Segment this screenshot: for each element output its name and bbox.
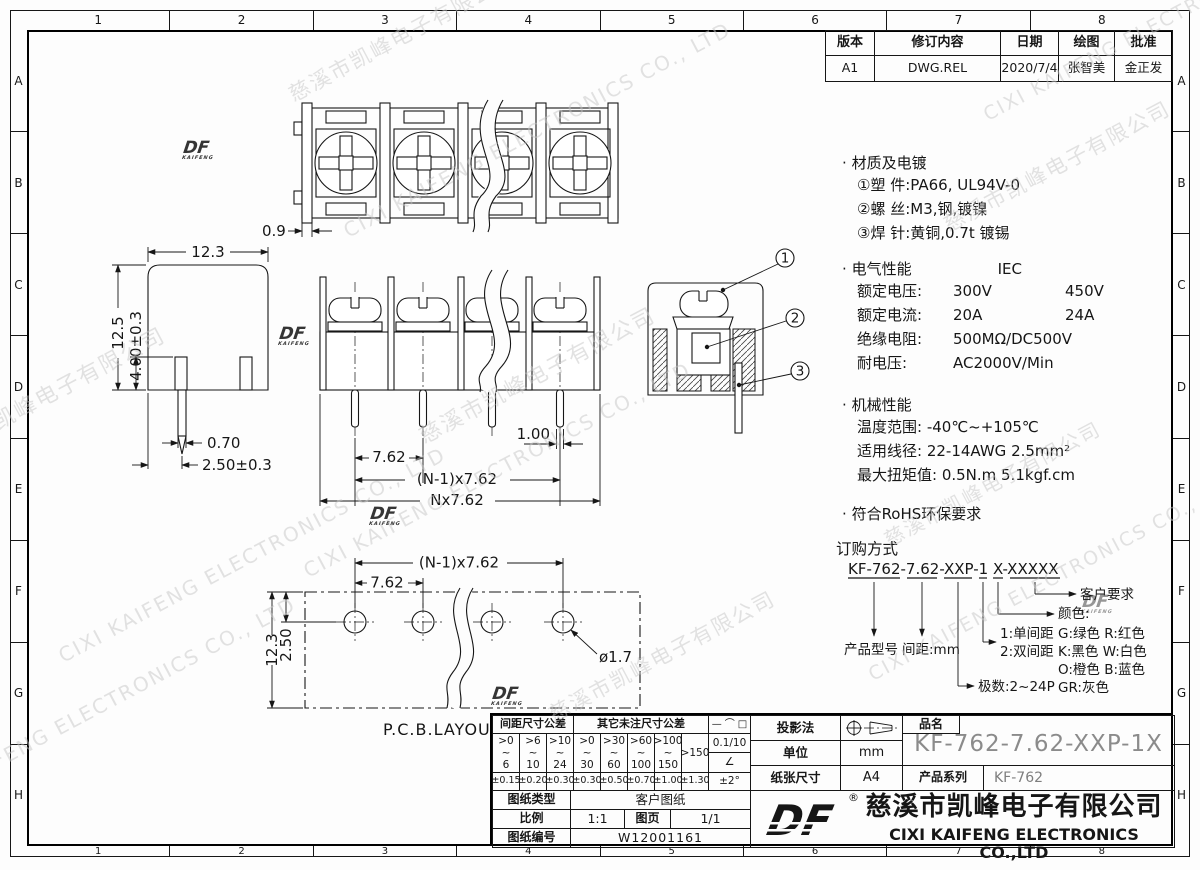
spec-label: 额定电压: (857, 279, 953, 303)
side-view-drawing: 12.3 12.5 4.00±0.3 0.70 2.50±0.3 (88, 238, 298, 478)
kaifeng-stamp-logo: DFKAIFENG (491, 688, 525, 706)
scale-value: 1:1 (570, 809, 625, 829)
hatched-wall (653, 329, 667, 391)
grid-row-label: E (10, 439, 27, 541)
dimension-pin-offset-2.50: 2.50±0.3 (132, 393, 272, 474)
geometry-symbols: —⌒□ (708, 715, 751, 734)
dim-text: Nx7.62 (430, 491, 484, 509)
engineering-drawing-sheet: { "sheet": { "grid_cols": ["1","2","3","… (0, 0, 1200, 870)
revision-draftsman: 张智美 (1058, 55, 1115, 82)
revision-header-version: 版本 (825, 30, 875, 56)
tolerance-range: >0 ~ 30 (573, 733, 601, 773)
part-name-value: KF-762-7.62-XXP-1X (914, 731, 1163, 757)
section-view-drawing: 1 2 3 (633, 243, 813, 448)
company-name-en: CIXI KAIFENG ELECTRONICS CO.,LTD (855, 826, 1173, 863)
straightness-icon: — (712, 719, 722, 731)
company-cell: DF ® 慈溪市凯峰电子有限公司 CIXI KAIFENG ELECTRONIC… (750, 790, 1175, 848)
range-text: >10 ~ 24 (549, 735, 571, 771)
side-view-body (148, 265, 268, 454)
kaifeng-stamp-logo: DFKAIFENG (1081, 596, 1115, 614)
angle-tolerance: ±2° (708, 772, 751, 791)
doc-number-label: 图纸编号 (492, 828, 571, 848)
dim-text: 4.00±0.3 (127, 311, 145, 381)
company-logo-icon: DF (759, 798, 847, 842)
balloon-callout-1: 1 (721, 249, 794, 292)
dimension-pin-1.00: 1.00 (517, 425, 583, 449)
mechanical-title: 机械性能 (852, 396, 912, 414)
series-value: KF-762 (983, 765, 1175, 791)
dim-text: 2.50 (277, 628, 295, 661)
balloon-number: 1 (781, 251, 790, 267)
range-text: >6 ~ 10 (525, 735, 540, 771)
revision-table: 版本 修订内容 日期 绘图 批准 A1 DWG.REL 2020/7/4 张智美… (825, 30, 1173, 82)
mechanical-item: 适用线径: 22-14AWG 2.5mm² (857, 439, 1187, 463)
dim-text: ø1.7 (599, 648, 632, 666)
grid-row-label: B (10, 132, 27, 234)
page-label: 图页 (624, 809, 671, 829)
dim-text: 1.00 (517, 425, 550, 443)
part-name-cell: 品名 KF-762-7.62-XXP-1X (902, 715, 1175, 766)
bullet: · (842, 154, 847, 172)
revision-header-approve: 批准 (1114, 30, 1173, 56)
grid-col-label: 1 (27, 10, 170, 30)
grid-col-label: 2 (170, 846, 313, 857)
unit-value: mm (840, 740, 903, 766)
material-notes: · 材质及电镀 ①塑 件:PA66, UL94V-0 ②螺 丝:M3,钢,镀镍 … (842, 152, 1187, 245)
rohs-text: 符合RoHS环保要求 (852, 505, 982, 523)
material-item: ②螺 丝:M3,钢,镀镍 (857, 197, 1187, 221)
dimension-pcb-pitch: 7.62 (355, 574, 423, 609)
spec-label: 额定电流: (857, 303, 953, 327)
page-value: 1/1 (670, 809, 751, 829)
grid-col-label: 8 (1031, 10, 1173, 30)
grid-col-label: 4 (457, 10, 600, 30)
tolerance-range: >30 ~ 60 (600, 733, 628, 773)
dim-text: 12.5 (109, 316, 127, 349)
pcb-layout-drawing: (N-1)x7.62 7.62 12.3 2.50 ø1.7 (255, 550, 685, 722)
arc-icon: ⌒ (725, 719, 735, 731)
dim-text: 7.62 (370, 574, 403, 592)
dim-text: (N-1)x7.62 (419, 554, 499, 572)
electrical-standard: IEC (998, 260, 1022, 278)
ordering-code: KF-762-7.62-XXP-1 X-XXXXX (848, 560, 1059, 578)
spec-label: 耐电压: (857, 351, 953, 375)
revision-header-date: 日期 (1000, 30, 1059, 56)
other-tolerance-header: 其它未注尺寸公差 (573, 715, 709, 734)
rohs-line: · 符合RoHS环保要求 (842, 503, 1187, 524)
grid-band-left: A B C D E F G H (10, 30, 27, 846)
front-view-body (320, 277, 600, 436)
ordering-title: 订购方式 (836, 540, 898, 558)
first-angle-projection-icon (840, 715, 903, 741)
bullet: · (842, 260, 847, 278)
ordering-spacing-1: 1:单间距 (1000, 626, 1054, 642)
ordering-poles: 极数:2~24P (978, 679, 1055, 695)
spec-value: 300V (953, 279, 1065, 303)
tolerance-value: ±1.00 (654, 772, 682, 791)
spec-value: 20A (953, 303, 1065, 327)
electrical-notes: · 电气性能IEC 额定电压:300V450V 额定电流:20A24A 绝缘电阻… (842, 258, 1187, 375)
range-text: >60 ~ 100 (630, 735, 652, 771)
ordering-spacing-2: 2:双间距 (1000, 644, 1054, 660)
ordering-pitch: 间距:mm (902, 642, 960, 658)
tolerance-range: >6 ~ 10 (519, 733, 547, 773)
paper-size-value: A4 (840, 765, 903, 791)
tolerance-value: ±0.30 (546, 772, 574, 791)
dim-text: (N-1)x7.62 (417, 470, 497, 488)
revision-date: 2020/7/4 (1000, 55, 1059, 82)
range-text: >0 ~ 30 (579, 735, 594, 771)
electrical-row: 额定电流:20A24A (857, 303, 1187, 327)
electrical-title-line: · 电气性能IEC (842, 258, 1187, 279)
material-title-line: · 材质及电镀 (842, 152, 1187, 173)
mounting-hole (404, 603, 442, 641)
grid-row-label: H (10, 745, 27, 846)
tolerance-value: ±0.50 (600, 772, 628, 791)
grid-col-label: 5 (601, 10, 744, 30)
tolerance-value: ±1.30 (681, 772, 709, 791)
range-text: >30 ~ 60 (603, 735, 625, 771)
tolerance-range: >60 ~ 100 (627, 733, 655, 773)
mechanical-item: 最大扭矩值: 0.5N.m 5.1kgf.cm (857, 463, 1187, 487)
angle-icon: ∠ (708, 752, 751, 773)
section-body (648, 283, 763, 433)
pcb-layout-label: P.C.B.LAYOUT (383, 720, 502, 739)
solder-pin (735, 363, 742, 433)
ordering-color-row: K:黑色 W:白色 (1058, 643, 1147, 660)
spec-value: 24A (1065, 306, 1094, 324)
grid-col-label: 3 (314, 10, 457, 30)
spec-label: 绝缘电阻: (857, 327, 953, 351)
tolerance-value: ±0.20 (519, 772, 547, 791)
dim-text: 7.62 (372, 448, 405, 466)
mechanical-title-line: · 机械性能 (842, 394, 1187, 415)
doc-type-value: 客户图纸 (570, 790, 751, 810)
grid-col-label: 2 (170, 10, 313, 30)
terminal-cell (549, 111, 611, 215)
electrical-title: 电气性能 (852, 260, 912, 278)
dimension-pin-width-0.70: 0.70 (162, 434, 240, 452)
material-item: ①塑 件:PA66, UL94V-0 (857, 173, 1187, 197)
range-text: >100 ~ 150 (654, 735, 683, 771)
electrical-row: 额定电压:300V450V (857, 279, 1187, 303)
doc-type-label: 图纸类型 (492, 790, 571, 810)
kaifeng-stamp-logo: DFKAIFENG (278, 328, 312, 346)
bullet: · (842, 505, 847, 523)
top-view-drawing: 0.9 (262, 96, 624, 240)
terminal-cell (393, 111, 455, 215)
revision-header-content: 修订内容 (874, 30, 1001, 56)
dimension-hole-dia: ø1.7 (571, 630, 632, 666)
title-block: 间距尺寸公差 其它未注尺寸公差 >0 ~ 6 >6 ~ 10 >10 ~ 24 … (490, 713, 1173, 846)
dimension-pcb-offset: 2.50 (277, 592, 336, 662)
tolerance-range: >10 ~ 24 (546, 733, 574, 773)
kaifeng-stamp-logo: DFKAIFENG (182, 142, 216, 160)
spec-value: 500MΩ/DC500V (953, 330, 1072, 348)
part-name-label: 品名 (902, 715, 960, 734)
company-name-cn: 慈溪市凯峰电子有限公司 (855, 793, 1173, 823)
revision-header-draw: 绘图 (1058, 30, 1115, 56)
ordering-color-row: G:绿色 R:红色 (1058, 625, 1145, 642)
mechanical-item: 温度范围: -40℃~+105℃ (857, 415, 1187, 439)
logo-text: DF (763, 797, 837, 845)
electrical-row: 耐电压:AC2000V/Min (857, 351, 1187, 375)
dimension-pitch-7.62: 7.62 (355, 438, 423, 506)
doc-number-value: W12001161 (570, 828, 751, 848)
ordering-diagram: 订购方式 KF-762-7.62-XXP-1 X-XXXXX 产品型号 间距:m… (830, 538, 1188, 718)
electrical-row: 绝缘电阻:500MΩ/DC500V (857, 327, 1187, 351)
ordering-product-model: 产品型号 (844, 642, 898, 658)
grid-row-label: A (10, 30, 27, 132)
dim-text: 0.70 (207, 434, 240, 452)
dimension-width-12.3: 12.3 (148, 243, 268, 262)
mechanical-notes: · 机械性能 温度范围: -40℃~+105℃ 适用线径: 22-14AWG 2… (842, 394, 1187, 487)
scale-label: 比例 (492, 809, 571, 829)
hatched-base (677, 375, 701, 391)
hatched-base (711, 375, 730, 391)
tolerance-range: >100 ~ 150 (654, 733, 682, 773)
terminal-cell (315, 111, 377, 215)
paper-size-label: 纸张尺寸 (750, 765, 841, 791)
series-label: 产品系列 (902, 765, 984, 791)
grid-col-label: 6 (744, 10, 887, 30)
ordering-color-row: O:橙色 B:蓝色 (1058, 661, 1145, 678)
geometry-tolerance: 0.1/10 (708, 733, 751, 753)
range-text: >0 ~ 6 (498, 735, 513, 771)
mounting-hole (336, 603, 374, 641)
material-title: 材质及电镀 (852, 154, 927, 172)
grid-row-label: C (10, 234, 27, 336)
grid-row-label: G (10, 643, 27, 745)
balloon-number: 2 (791, 311, 800, 327)
grid-col-label: 3 (314, 846, 457, 857)
tolerance-range: >150 (681, 733, 709, 773)
front-view-drawing: 1.00 7.62 (N-1)x7.62 Nx7.62 (300, 258, 625, 538)
dim-text: 12.3 (191, 243, 224, 261)
tolerance-value: ±0.70 (627, 772, 655, 791)
ordering-color-row: GR:灰色 (1058, 679, 1109, 696)
revision-content: DWG.REL (874, 55, 1001, 82)
break-lines (447, 588, 474, 708)
rohs-note: · 符合RoHS环保要求 (842, 503, 1187, 524)
pitch-tolerance-header: 间距尺寸公差 (492, 715, 574, 734)
revision-approver: 金正发 (1114, 55, 1173, 82)
spec-value: 450V (1065, 282, 1104, 300)
projection-label: 投影法 (750, 715, 841, 741)
dimension-slot-4.00: 4.00±0.3 (127, 311, 173, 390)
mounting-hole (473, 603, 511, 641)
grid-row-label: H (1173, 745, 1190, 846)
grid-band-top: 1 2 3 4 5 6 7 8 (27, 10, 1173, 30)
kaifeng-stamp-logo: DFKAIFENG (369, 508, 403, 526)
tolerance-range: >0 ~ 6 (492, 733, 520, 773)
grid-row-label: D (10, 336, 27, 438)
grid-row-label: F (10, 541, 27, 643)
spec-value: AC2000V/Min (953, 354, 1054, 372)
unit-label: 单位 (750, 740, 841, 766)
flatness-icon: □ (738, 719, 747, 731)
revision-version: A1 (825, 55, 875, 82)
bullet: · (842, 396, 847, 414)
balloon-number: 3 (796, 364, 805, 380)
grid-row-label: A (1173, 30, 1190, 132)
tolerance-value: ±0.15 (492, 772, 520, 791)
grid-col-label: 1 (27, 846, 170, 857)
dim-text: 2.50±0.3 (202, 456, 272, 474)
tolerance-value: ±0.30 (573, 772, 601, 791)
material-item: ③焊 针:黄铜,0.7t 镀锡 (857, 221, 1187, 245)
grid-col-label: 7 (887, 10, 1030, 30)
